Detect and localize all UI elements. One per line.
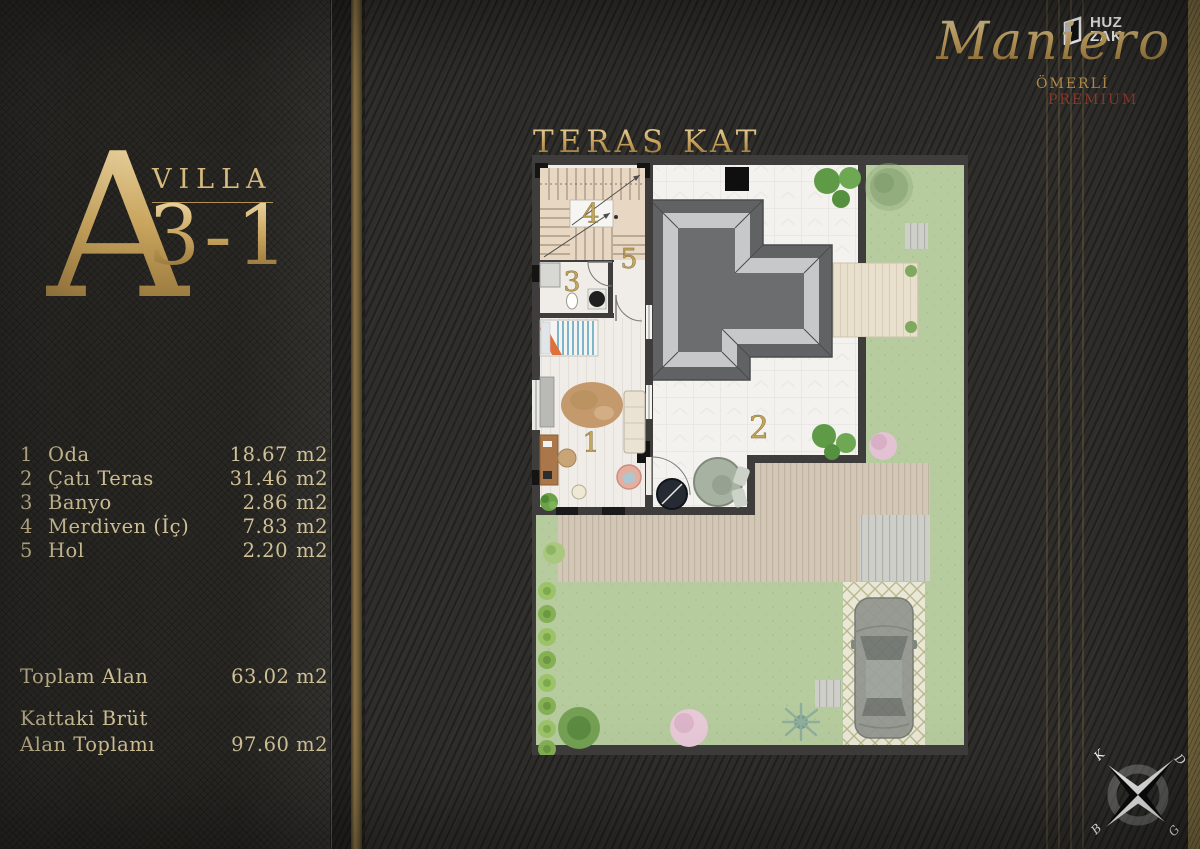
car [851, 598, 917, 738]
compass-north-label: K [1091, 746, 1109, 764]
deck-steps [860, 515, 930, 581]
room-name: Oda [48, 443, 222, 467]
deck-plant [543, 542, 565, 564]
table-row: 4 Merdiven (İç) 7.83 m2 [20, 515, 328, 539]
bed [540, 320, 598, 356]
room-number: 1 [20, 443, 48, 467]
label-room-5: 5 [620, 244, 637, 275]
total-area-row: Toplam Alan 63.02 m2 [20, 665, 328, 688]
room-area-unit: m2 [288, 515, 328, 539]
garden-edge-steps [905, 223, 928, 249]
room-number: 3 [20, 491, 48, 515]
room-area: 31.46 [222, 467, 288, 491]
villa-number: 3-1 [148, 196, 292, 278]
compass-west-label: B [1088, 821, 1105, 838]
side-table [572, 485, 586, 499]
total-area-label: Toplam Alan [20, 665, 231, 688]
room-name: Çatı Teras [48, 467, 222, 491]
sofa [624, 391, 645, 453]
indoor-plant [540, 493, 558, 511]
room-area: 7.83 [222, 515, 288, 539]
garden-tree [865, 163, 913, 211]
label-room-1: 1 [582, 428, 599, 459]
room-name: Merdiven (İç) [48, 515, 222, 539]
washbasin [589, 291, 605, 307]
gold-stripe-decoration [351, 0, 362, 849]
room-number: 5 [20, 539, 48, 563]
table-row: 5 Hol 2.20 m2 [20, 539, 328, 563]
project-subtitle: ÖMERLİ PREMIUM [1036, 76, 1200, 108]
gross-area-label-line1: Kattaki Brüt [20, 706, 328, 732]
room-area-table: 1 Oda 18.67 m2 2 Çatı Teras 31.46 m2 3 B… [20, 443, 328, 563]
total-area-value: 63.02 m2 [231, 665, 328, 688]
room-area-unit: m2 [288, 539, 328, 563]
label-room-2: 2 [749, 410, 769, 446]
rug [561, 382, 623, 428]
chimney [725, 167, 749, 191]
divider-hairline [331, 0, 332, 849]
room-area: 2.20 [222, 539, 288, 563]
compass-rose: K D G B [1083, 745, 1193, 845]
gross-area-value: 97.60 m2 [231, 732, 328, 758]
room-area-unit: m2 [288, 443, 328, 467]
wardrobe [540, 377, 554, 427]
compass-south-label: G [1166, 822, 1183, 839]
gold-edge-band [1188, 0, 1200, 849]
table-row: 1 Oda 18.67 m2 [20, 443, 328, 467]
room-area: 18.67 [222, 443, 288, 467]
table-row: 3 Banyo 2.86 m2 [20, 491, 328, 515]
pink-bush-garden [869, 432, 897, 460]
label-room-4: 4 [582, 199, 599, 230]
lawn-steps [815, 680, 842, 707]
room-area-unit: m2 [288, 467, 328, 491]
compass-east-label: D [1171, 751, 1189, 769]
floor-plan: 4 5 3 1 2 [532, 155, 968, 755]
black-coffee-table [657, 479, 687, 509]
room-area-unit: m2 [288, 491, 328, 515]
left-panel: A VILLA 3-1 1 Oda 18.67 m2 2 Çatı Teras … [0, 0, 330, 849]
room-name: Hol [48, 539, 222, 563]
side-deck [750, 463, 930, 515]
room-number: 2 [20, 467, 48, 491]
pink-flower-bush [670, 709, 708, 747]
project-tier: PREMIUM [1048, 92, 1138, 108]
bottom-deck [558, 510, 860, 582]
table-row: 2 Çatı Teras 31.46 m2 [20, 467, 328, 491]
project-logo: Maniero [936, 16, 1171, 68]
room-name: Banyo [48, 491, 222, 515]
label-room-3: 3 [563, 267, 580, 298]
gross-area-label-line2: Alan Toplamı [20, 732, 231, 758]
armchair-pink [617, 465, 641, 489]
room-number: 4 [20, 515, 48, 539]
room-area: 2.86 [222, 491, 288, 515]
gross-area-block: Kattaki Brüt Alan Toplamı 97.60 m2 [20, 706, 328, 758]
project-location: ÖMERLİ [1036, 76, 1109, 92]
green-bush [558, 707, 600, 749]
